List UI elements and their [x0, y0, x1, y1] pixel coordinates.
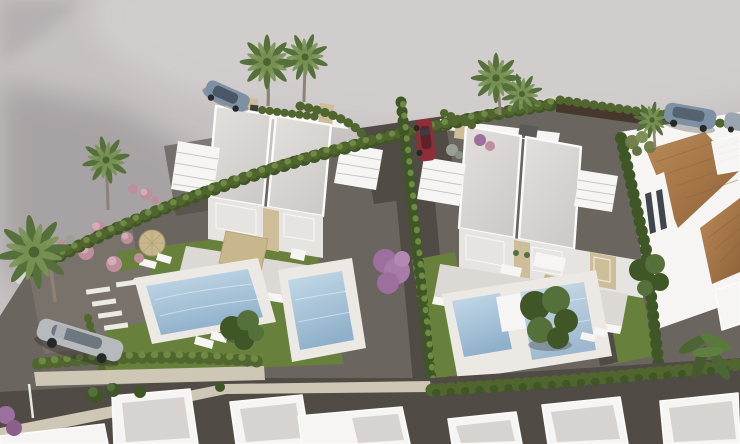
render-canvas [0, 0, 740, 444]
roof-top [240, 403, 302, 442]
villa2-roof-right [519, 137, 581, 249]
neighbour-roof-terrace [712, 134, 740, 174]
villa2-stairs-right [574, 170, 618, 212]
terrace-planter [513, 250, 519, 256]
villa2-stairs-left [417, 157, 466, 206]
parasol [139, 230, 165, 256]
roof-top [669, 401, 736, 442]
palm-tree [240, 35, 295, 90]
architectural-render [0, 0, 740, 444]
roof-top [122, 397, 190, 442]
terrace-planter [524, 252, 530, 258]
roof-top [352, 414, 404, 443]
